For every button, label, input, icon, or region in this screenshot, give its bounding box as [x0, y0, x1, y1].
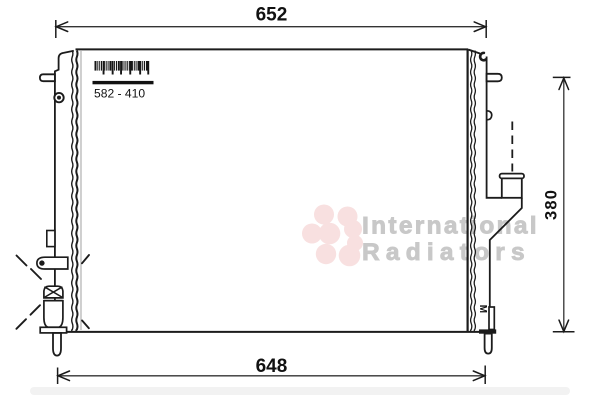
svg-text:648: 648 [256, 356, 288, 377]
svg-text:582 - 410: 582 - 410 [94, 87, 145, 101]
svg-text:380: 380 [542, 189, 560, 220]
svg-text:M: M [477, 305, 488, 313]
svg-text:652: 652 [256, 5, 288, 26]
svg-text:Radiators: Radiators [362, 239, 531, 266]
